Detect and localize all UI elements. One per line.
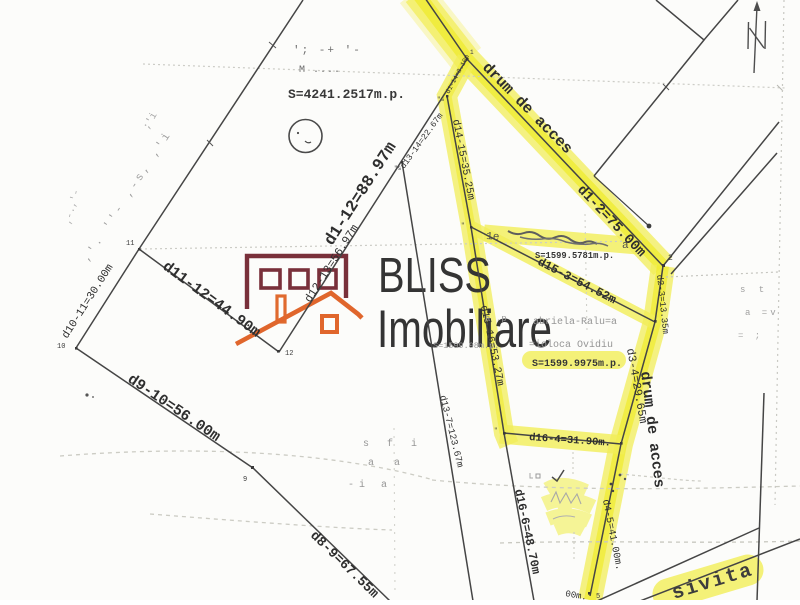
svg-text:": " (461, 222, 465, 229)
svg-text:S=1599.5781m.p.: S=1599.5781m.p. (535, 251, 614, 261)
svg-text:S=1599.98m.p.: S=1599.98m.p. (433, 341, 499, 351)
svg-text:11: 11 (126, 240, 134, 248)
svg-text:"s: "s (394, 165, 402, 172)
svg-text:'; -+ '-: '; -+ '- (293, 45, 362, 57)
svg-text:2: 2 (668, 254, 673, 263)
svg-text:BLISS: BLISS (378, 249, 491, 303)
svg-text:s t: s t (740, 285, 768, 295)
svg-text:": " (494, 427, 498, 434)
svg-text:1: 1 (470, 49, 474, 56)
svg-text:a: a (622, 240, 629, 252)
svg-text:a .p: a .p (485, 314, 507, 324)
svg-text:s f i: s f i (363, 438, 423, 450)
svg-text:= ;: = ; (738, 331, 763, 341)
svg-text:=ioloca Ovidiu: =ioloca Ovidiu (529, 339, 613, 351)
svg-text:9: 9 (243, 476, 247, 484)
svg-text:"s: "s (437, 96, 445, 103)
svg-text:M ....: M .... (299, 65, 341, 76)
svg-text:-i a: -i a (348, 479, 392, 491)
svg-text:abriela-Ralu=a: abriela-Ralu=a (533, 316, 617, 328)
svg-text:a =v: a =v (745, 308, 779, 318)
svg-text:S=1599.9975m.p.: S=1599.9975m.p. (532, 359, 622, 370)
svg-text:5: 5 (596, 593, 600, 600)
svg-text:12: 12 (285, 350, 293, 358)
svg-text:S=4241.2517m.p.: S=4241.2517m.p. (288, 87, 405, 102)
svg-text:1e: 1e (486, 231, 500, 244)
svg-text:a a: a a (368, 458, 407, 469)
svg-text:10: 10 (57, 343, 65, 351)
